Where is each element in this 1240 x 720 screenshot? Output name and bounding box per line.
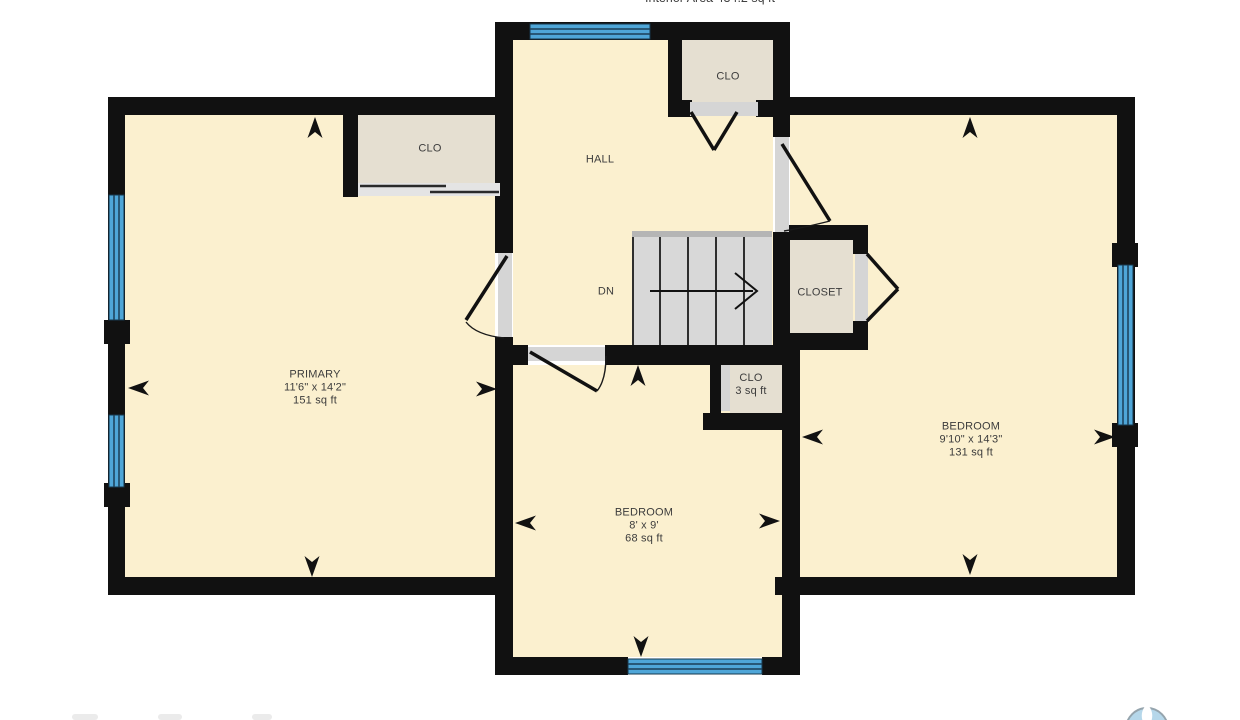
room-area: 151 sq ft [284, 395, 346, 408]
room-name: CLO [735, 372, 766, 385]
bedroom-bottom-label: BEDROOM 8' x 9' 68 sq ft [615, 507, 673, 546]
window-bottom [628, 659, 762, 674]
room-area: 3 sq ft [735, 385, 766, 398]
room-name: BEDROOM [940, 421, 1003, 434]
room-dims: 11'6" x 14'2" [284, 382, 346, 395]
primary-room-label: PRIMARY 11'6" x 14'2" 151 sq ft [284, 369, 346, 408]
bedroom-right-label: BEDROOM 9'10" x 14'3" 131 sq ft [940, 421, 1003, 460]
clo-primary-label: CLO [418, 143, 441, 156]
watermark-text-remnant [72, 714, 272, 720]
clo-small-label: CLO 3 sq ft [735, 372, 766, 398]
window-left-upper [109, 195, 124, 320]
window-top [530, 24, 650, 39]
floor-plan-drawing [0, 0, 1240, 720]
clo-top-label: CLO [716, 71, 739, 84]
floor-plan: Interior Area 434.2 sq ft PRIMARY 11'6" … [0, 0, 1240, 720]
staircase [632, 231, 772, 345]
hall-label: HALL [586, 154, 614, 167]
closet-label: CLOSET [797, 287, 842, 300]
window-right [1118, 265, 1133, 425]
interior-area-header: Interior Area 434.2 sq ft [645, 0, 775, 5]
stairs-dn-label: DN [598, 286, 614, 299]
room-name: PRIMARY [284, 369, 346, 382]
window-left-lower [109, 415, 124, 487]
room-area: 131 sq ft [940, 447, 1003, 460]
room-area: 68 sq ft [615, 533, 673, 546]
compass-logo-icon [1123, 704, 1172, 720]
room-name: BEDROOM [615, 507, 673, 520]
room-dims: 9'10" x 14'3" [940, 434, 1003, 447]
room-dims: 8' x 9' [615, 520, 673, 533]
